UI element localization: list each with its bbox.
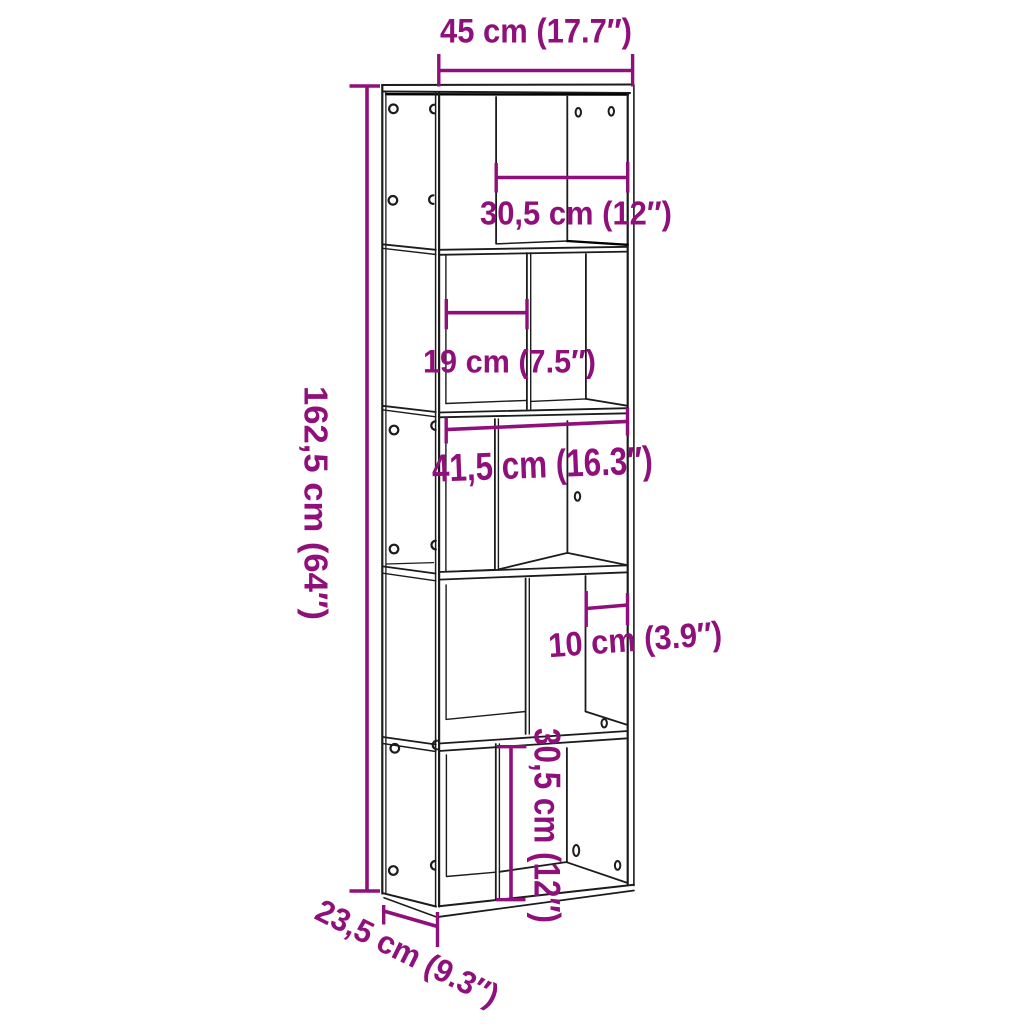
svg-text:30,5 cm (12″): 30,5 cm (12″) <box>527 728 568 923</box>
svg-text:162,5 cm (64″): 162,5 cm (64″) <box>298 386 335 620</box>
svg-text:30,5 cm (12″): 30,5 cm (12″) <box>480 195 672 232</box>
svg-text:19 cm (7.5″): 19 cm (7.5″) <box>423 343 596 379</box>
svg-text:41,5 cm (16.3″): 41,5 cm (16.3″) <box>431 439 653 490</box>
svg-text:45 cm (17.7″): 45 cm (17.7″) <box>440 13 632 51</box>
